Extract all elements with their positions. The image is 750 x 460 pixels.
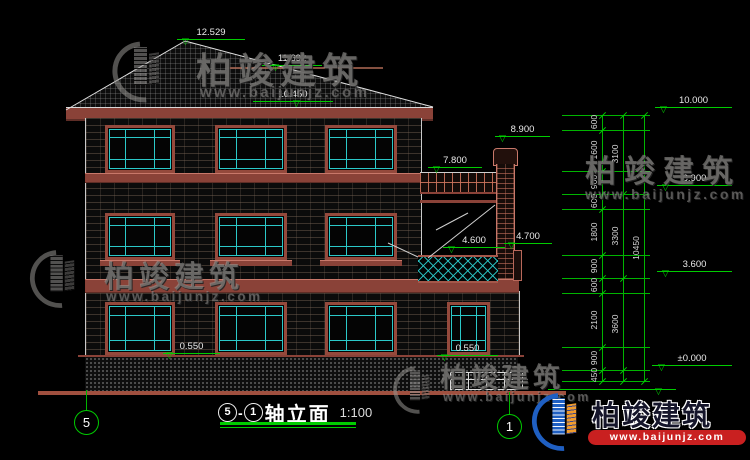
title-underline (220, 422, 356, 425)
dim-label: 3300 (610, 227, 620, 246)
axis-bubble-1: 1 (497, 414, 522, 439)
logo-building-icon (410, 371, 420, 401)
level-triangle-icon: ▽ (166, 351, 173, 360)
brand-logo-icon (530, 392, 593, 453)
watermark-url: www.baijunjz.com (200, 84, 369, 101)
title-underline-thin (220, 427, 356, 428)
title-scale: 1:100 (340, 405, 373, 420)
elevation-drawing-canvas: 12.529 ▽ 11.692 ▽ 10.450 ▽ 8.900 ▽ 7.800… (0, 0, 750, 460)
elevation-marker-porch-roof: 7.800 ▽ (428, 155, 482, 168)
dim-label: 2100 (589, 311, 599, 330)
title-axis-end: 1 (244, 403, 263, 422)
title-separator: - (238, 405, 243, 421)
brand-name: 柏竣建筑 (592, 394, 712, 434)
logo-building-icon (50, 255, 62, 291)
witness-line (562, 115, 650, 116)
elevation-marker-level-2: 3.600 ▽ (657, 259, 732, 272)
logo-building-icon (422, 375, 430, 400)
axis-bubble-5: 5 (74, 410, 99, 435)
elevation-marker-roof-peak: 12.529 ▽ (177, 27, 245, 40)
dim-label: 3600 (610, 315, 620, 334)
dim-label: 900 (589, 259, 599, 273)
logo-building-icon (65, 260, 75, 291)
level-triangle-icon: ▽ (182, 37, 189, 46)
axis-number: 5 (83, 415, 90, 430)
dim-label: 10450 (631, 236, 641, 260)
level-triangle-icon: ▽ (433, 165, 440, 174)
logo-building-icon (149, 52, 159, 84)
level-triangle-icon: ▽ (499, 134, 506, 143)
elevation-marker-sill-right: 0.550 ▽ (437, 343, 498, 356)
logo-building-icon (567, 403, 577, 434)
elevation-marker-ground: ±0.000 ▽ (652, 353, 732, 366)
logo-building-icon (134, 47, 147, 85)
dim-label: 900 (589, 351, 599, 365)
level-triangle-icon: ▽ (658, 363, 665, 372)
dim-label: 600 (589, 115, 599, 129)
watermark-logo-icon (110, 40, 176, 104)
witness-line (562, 370, 650, 371)
dim-label: 600 (589, 278, 599, 292)
axis-number: 1 (506, 419, 513, 434)
witness-line (562, 347, 650, 348)
level-triangle-icon: ▽ (662, 269, 669, 278)
witness-line (562, 130, 650, 131)
elevation-marker-sill-left: 0.550 ▽ (163, 341, 220, 354)
watermark-url: www.baijunjz.com (106, 289, 263, 304)
elevation-marker-foundation: ▽ (548, 377, 676, 390)
axis-line-5 (86, 390, 87, 411)
elevation-marker-level-top: 10.000 ▽ (655, 95, 732, 108)
elevation-marker-chimney-top: 8.900 ▽ (495, 124, 550, 137)
logo-building-icon (552, 398, 564, 434)
watermark-logo-icon (391, 365, 442, 415)
elevation-marker-balcony-rail: 4.600 ▽ (443, 235, 505, 248)
watermark-text: 柏竣建筑 (585, 146, 741, 191)
watermark-logo-icon (28, 249, 91, 310)
level-triangle-icon: ▽ (508, 241, 515, 250)
level-triangle-icon: ▽ (660, 105, 667, 114)
title-axis-start: 5 (218, 403, 237, 422)
level-triangle-icon: ▽ (448, 245, 455, 254)
witness-line (562, 293, 650, 294)
witness-line (562, 278, 650, 279)
dim-label: 1800 (589, 223, 599, 242)
watermark-url: www.baijunjz.com (585, 186, 746, 202)
brand-url-band: www.baijunjz.com (588, 430, 746, 445)
witness-line (562, 209, 650, 210)
elevation-marker-balcony-beam: 4.700 ▽ (504, 231, 552, 244)
